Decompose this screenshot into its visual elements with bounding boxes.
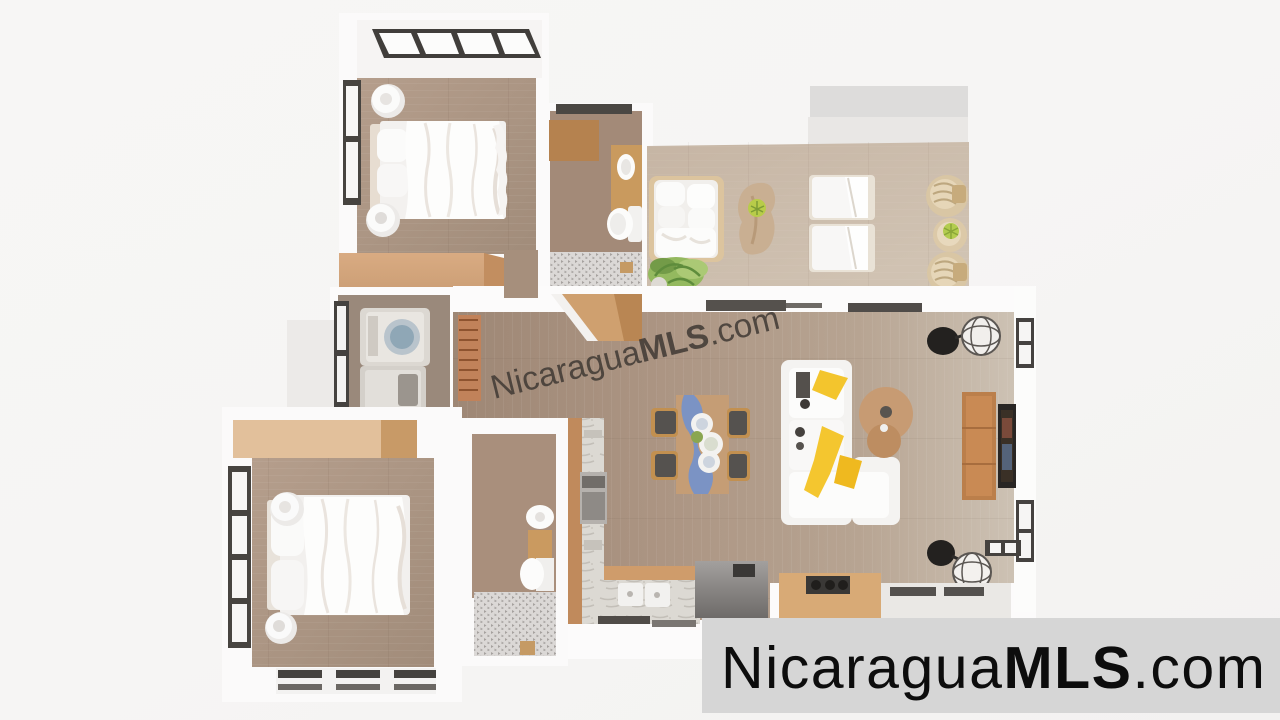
svg-text:NicaraguaMLS.com: NicaraguaMLS.com (721, 635, 1266, 701)
